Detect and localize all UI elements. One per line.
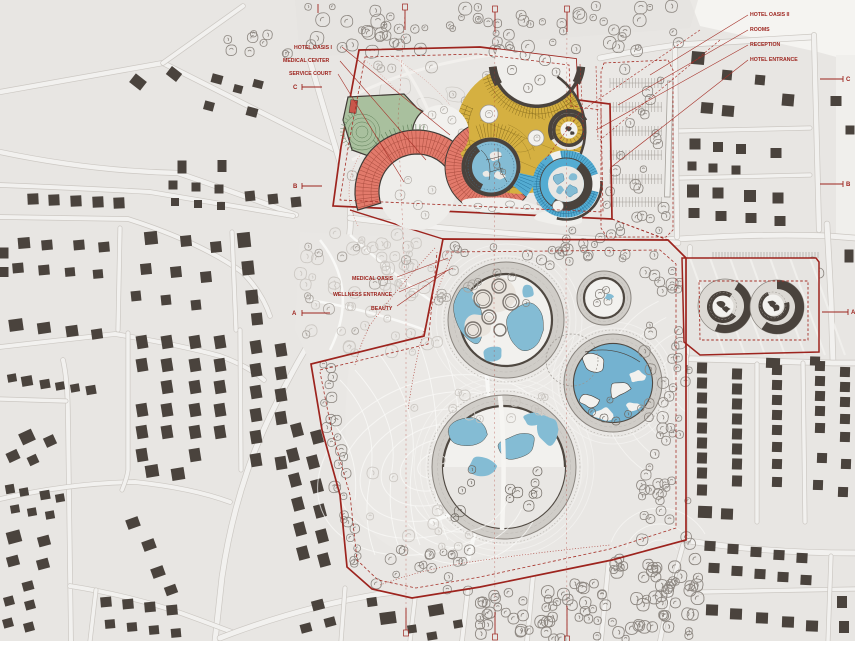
svg-text:MEDICAL OASIS: MEDICAL OASIS: [352, 276, 394, 282]
svg-text:HOTEL ENTRANCE: HOTEL ENTRANCE: [750, 57, 798, 63]
svg-text:SERVICE COURT: SERVICE COURT: [289, 71, 332, 77]
svg-text:B: B: [293, 184, 298, 190]
svg-text:MEDICAL CENTER: MEDICAL CENTER: [283, 58, 330, 64]
svg-text:WELLNESS ENTRANCE: WELLNESS ENTRANCE: [333, 292, 393, 298]
svg-text:ROOMS: ROOMS: [750, 27, 770, 33]
svg-text:C: C: [293, 85, 298, 91]
svg-text:C: C: [846, 77, 851, 83]
svg-text:HOTEL OASIS II: HOTEL OASIS II: [750, 12, 790, 18]
svg-text:BEAUTY: BEAUTY: [371, 306, 393, 312]
svg-text:RECEPTION: RECEPTION: [750, 42, 781, 48]
svg-text:B: B: [846, 182, 851, 188]
svg-text:A: A: [292, 311, 297, 317]
svg-text:A: A: [851, 310, 855, 316]
svg-text:HOTEL OASIS I: HOTEL OASIS I: [294, 45, 333, 51]
